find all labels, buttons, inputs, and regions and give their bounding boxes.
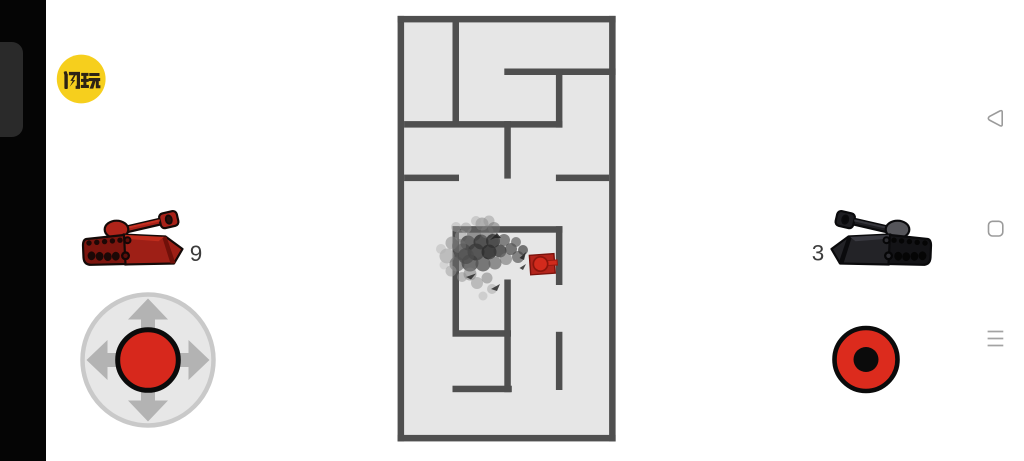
svg-text:3: 3 [812,241,825,266]
svg-text:9: 9 [190,241,203,266]
